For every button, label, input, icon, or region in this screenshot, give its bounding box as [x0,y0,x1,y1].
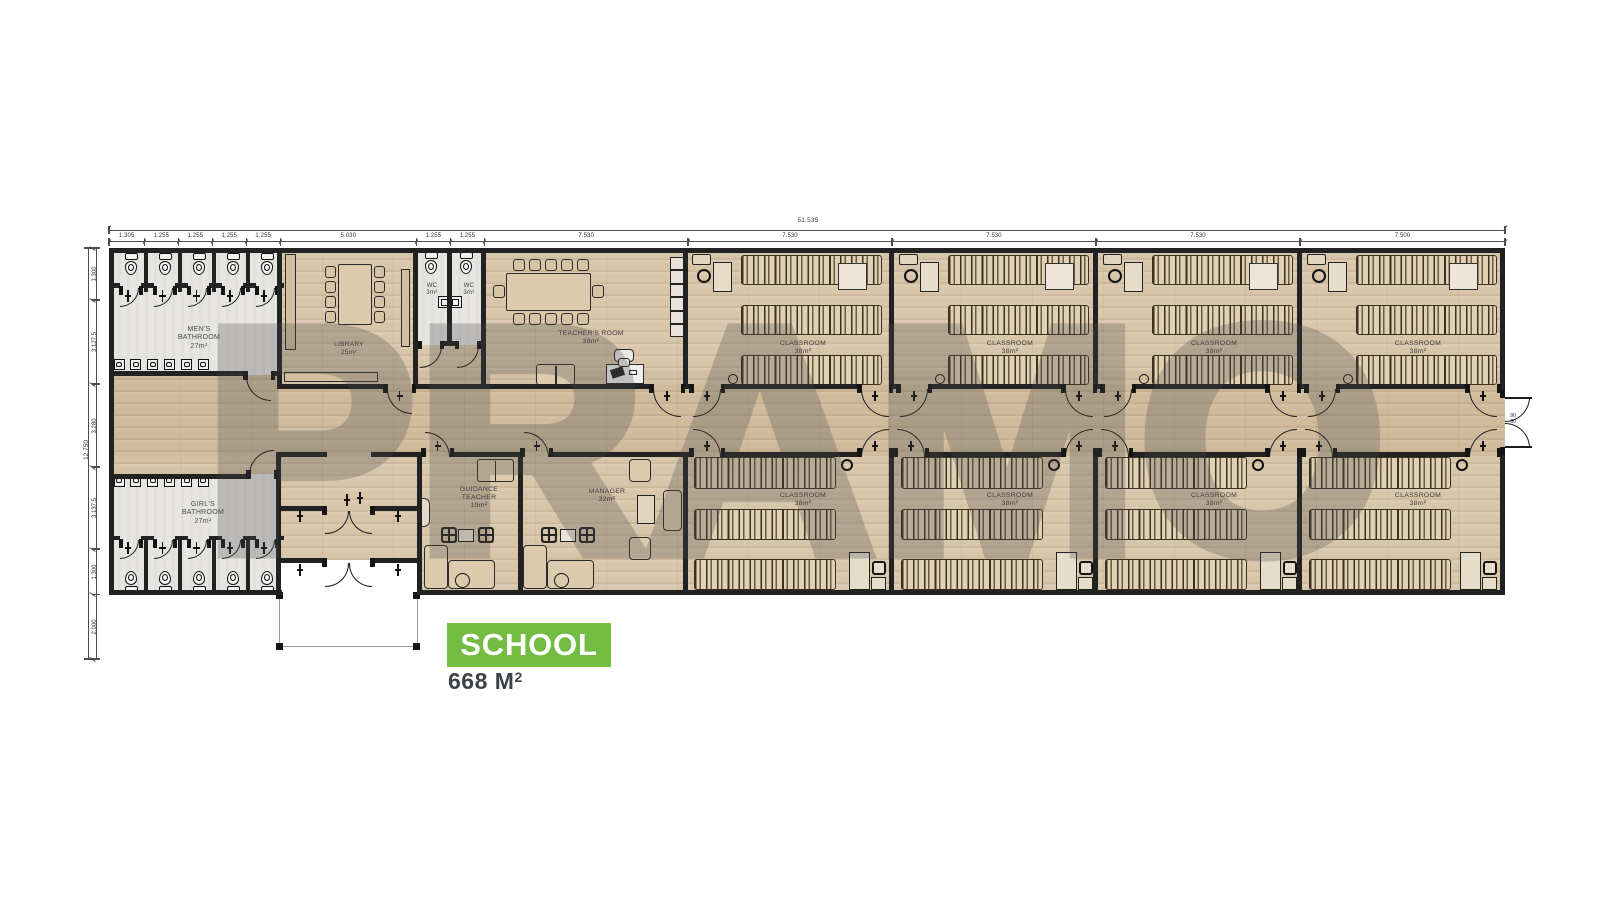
svg-text:PRAMO: PRAMO [204,261,1386,619]
